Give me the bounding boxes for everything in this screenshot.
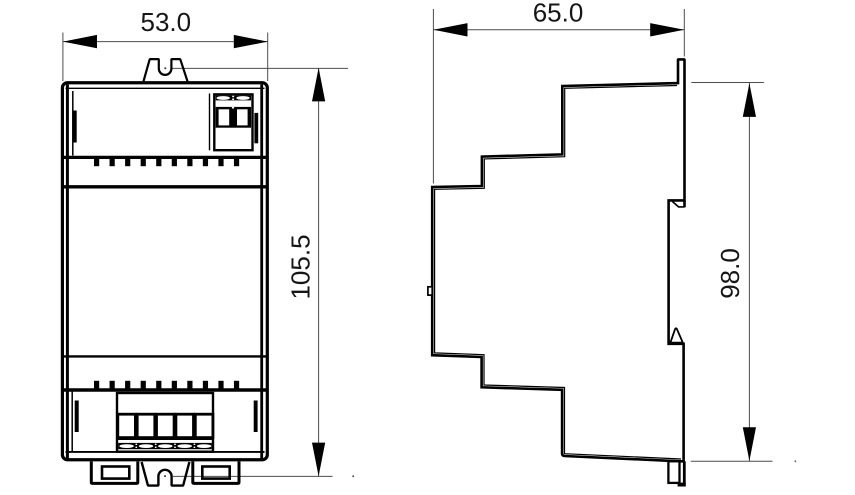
svg-text:65.0: 65.0	[533, 0, 584, 28]
svg-text:53.0: 53.0	[140, 7, 191, 37]
svg-text:105.5: 105.5	[285, 234, 315, 299]
svg-text:98.0: 98.0	[715, 248, 745, 299]
